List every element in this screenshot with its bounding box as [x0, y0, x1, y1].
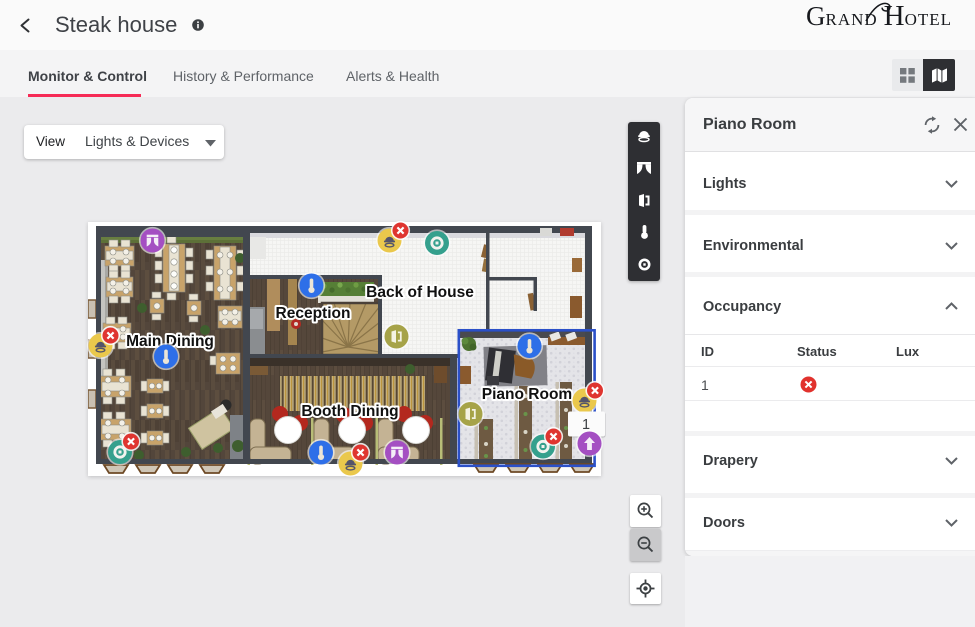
svg-text:Back of House: Back of House	[366, 284, 474, 301]
svg-text:Piano Room: Piano Room	[482, 386, 572, 403]
svg-text:Booth Dining: Booth Dining	[301, 403, 398, 420]
svg-text:Reception: Reception	[276, 305, 351, 322]
